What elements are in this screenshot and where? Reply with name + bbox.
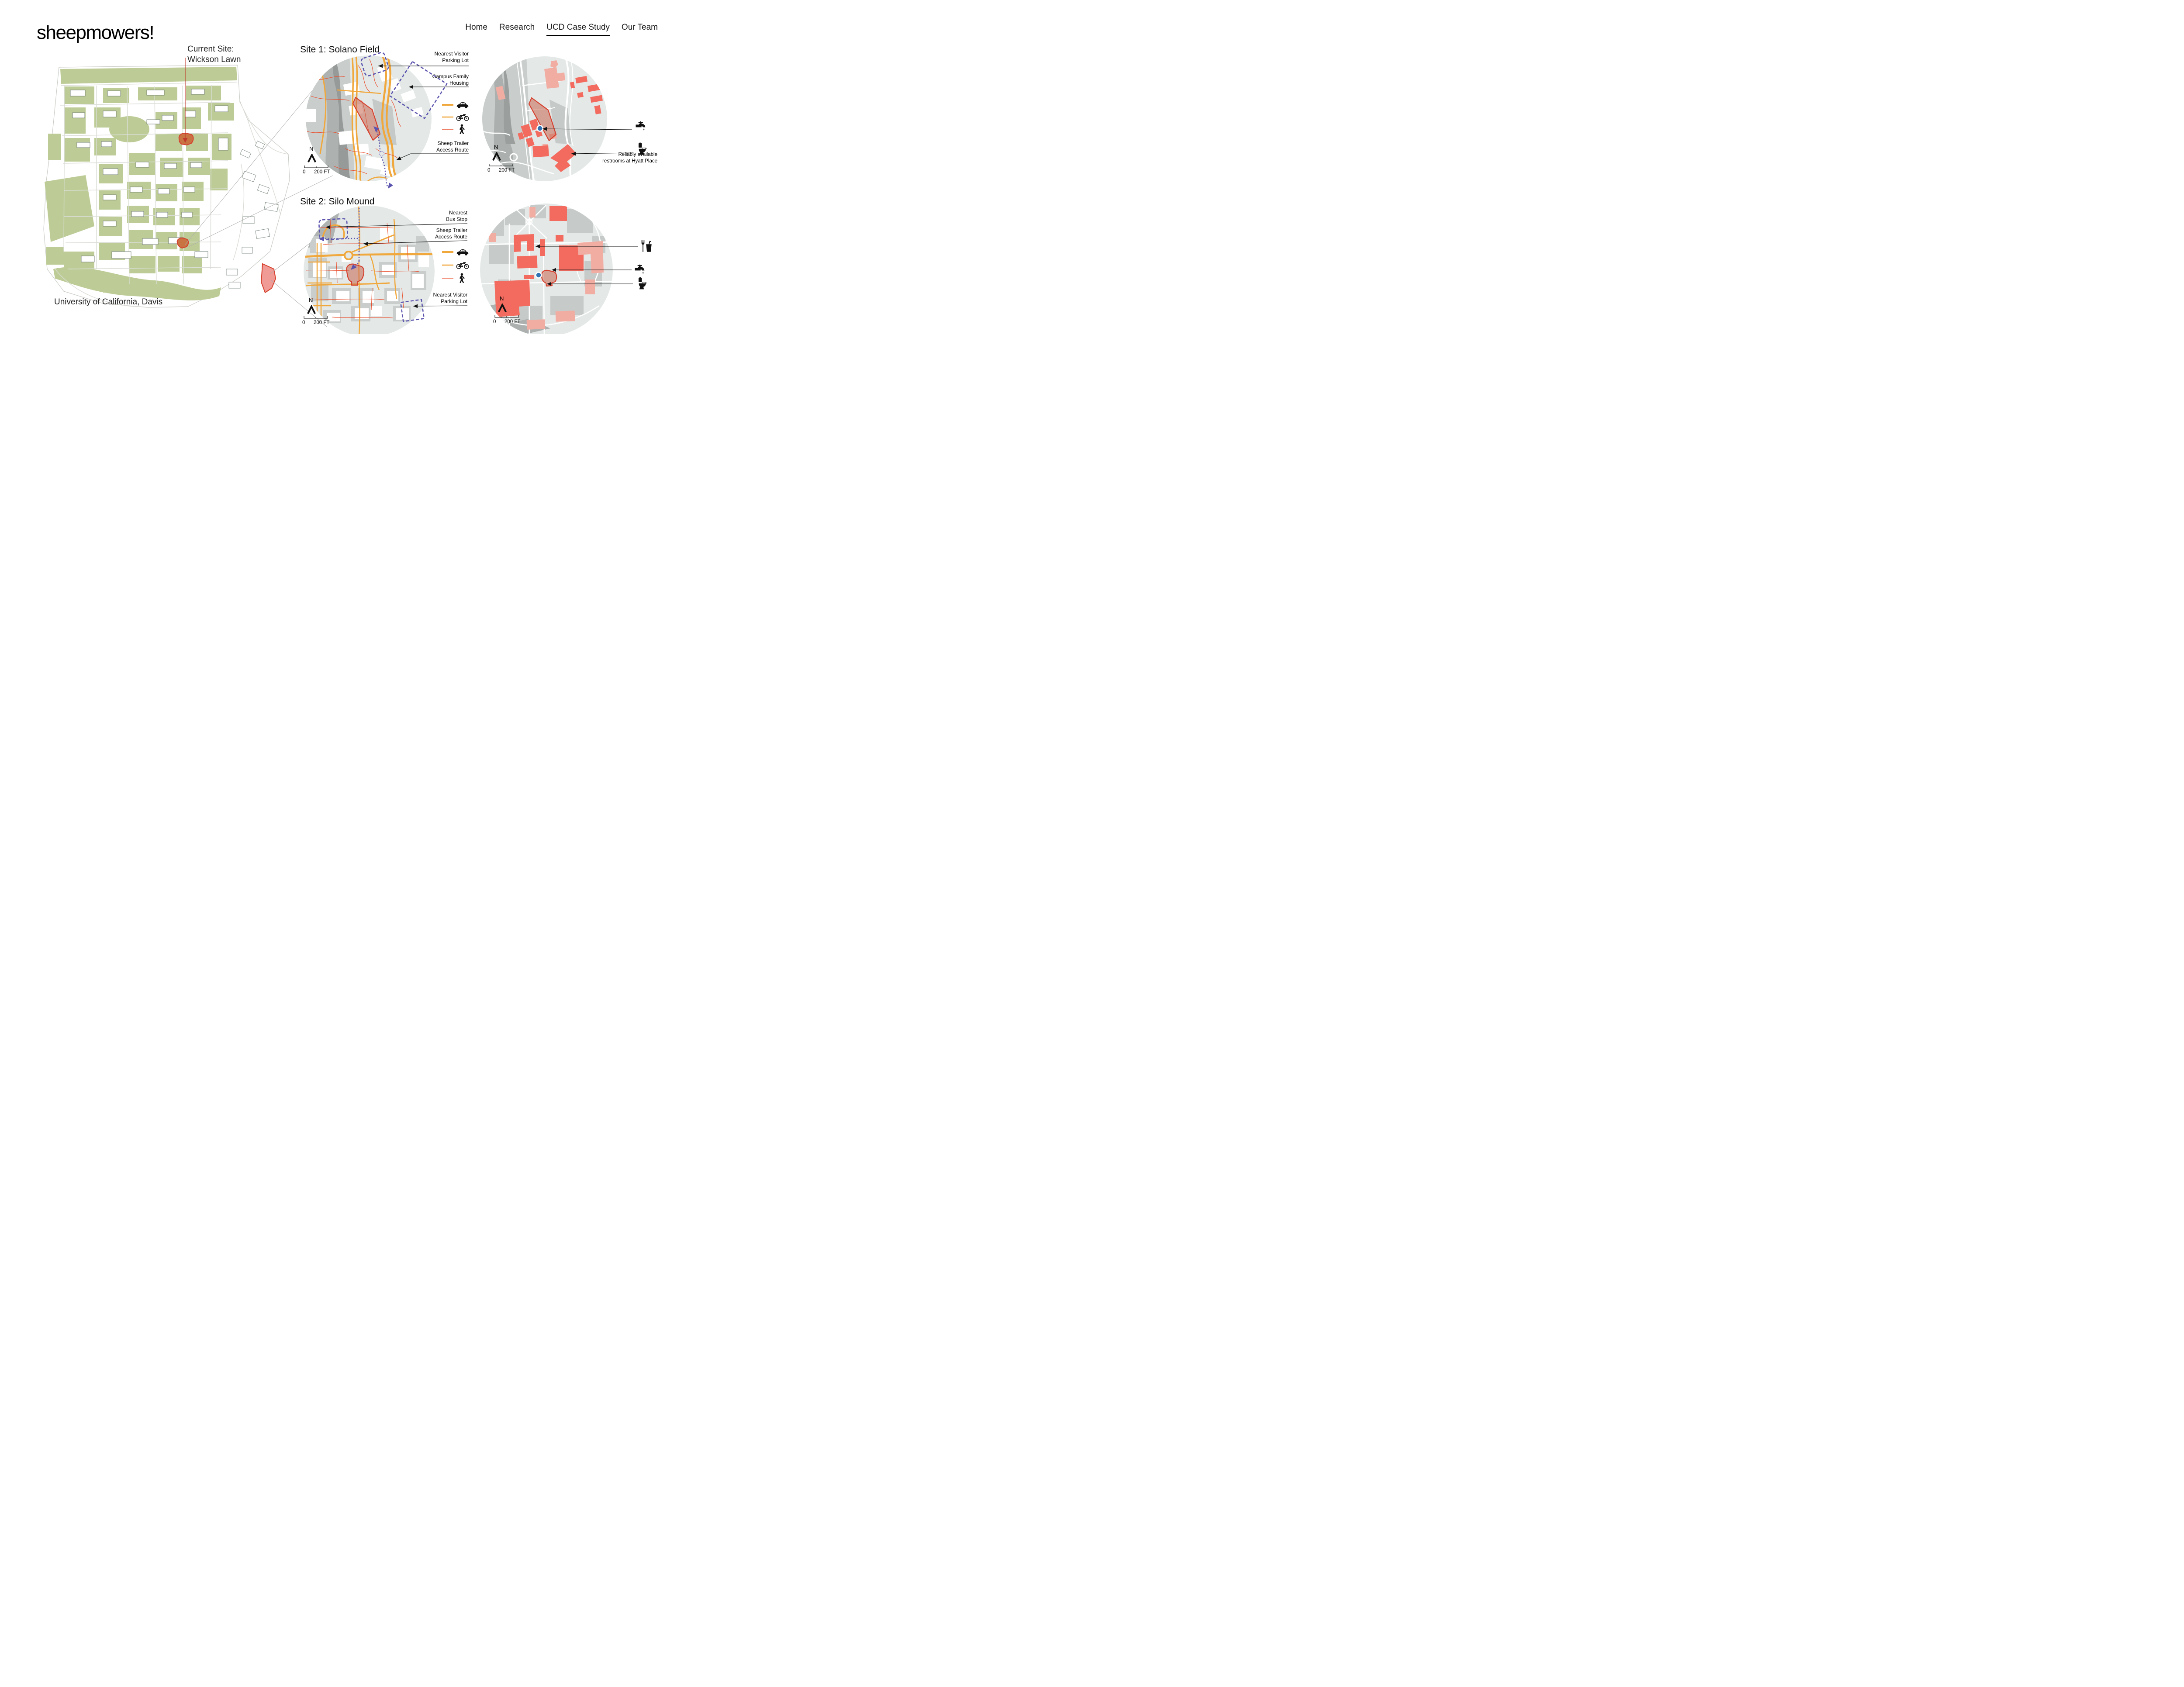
site2-label-bus-stop: Nearest Bus Stop <box>411 210 467 222</box>
water-faucet-icon <box>635 265 644 274</box>
site2-legend <box>442 249 469 283</box>
site1-label-housing: Campus Family Housing <box>412 73 469 86</box>
food-drink-icon <box>642 240 652 252</box>
north-label: N <box>309 297 313 304</box>
north-label: N <box>309 145 313 152</box>
scale-zero: 0 <box>487 168 490 173</box>
site2-label-trailer-route: Sheep Trailer Access Route <box>411 227 467 240</box>
water-faucet-icon <box>636 121 645 131</box>
scale-length: 200 FT <box>314 320 329 325</box>
water-source-dot <box>537 126 543 131</box>
site1-title: Site 1: Solano Field <box>300 45 380 55</box>
scale-zero: 0 <box>493 319 496 324</box>
scale-length: 200 FT <box>314 169 330 175</box>
nav-item-home[interactable]: Home <box>465 23 487 35</box>
restrooms-note: Reliably available restrooms at Hyatt Pl… <box>583 152 657 164</box>
campus-caption: University of California, Davis <box>54 297 162 307</box>
pedestrian-icon <box>460 124 464 134</box>
scale-zero: 0 <box>302 320 305 325</box>
bicycle-icon <box>456 114 468 121</box>
toilet-icon <box>639 277 646 289</box>
site1-label-parking: Nearest Visitor Parking Lot <box>412 51 469 63</box>
site2-label-parking: Nearest Visitor Parking Lot <box>411 292 467 304</box>
site2-amenities-circle <box>480 204 613 334</box>
scale-length: 200 FT <box>505 319 520 324</box>
north-label: N <box>500 295 504 302</box>
car-icon <box>457 249 468 255</box>
car-icon <box>457 102 468 108</box>
nav-item-ucd-case-study[interactable]: UCD Case Study <box>546 23 610 36</box>
campus-overview-map <box>44 65 290 307</box>
nav-item-research[interactable]: Research <box>499 23 535 35</box>
site1-legend <box>442 102 469 134</box>
site2-title: Site 2: Silo Mound <box>300 197 374 207</box>
site1-label-trailer-route: Sheep Trailer Access Route <box>412 140 469 153</box>
pedestrian-icon <box>460 273 464 283</box>
nav-item-our-team[interactable]: Our Team <box>622 23 658 35</box>
logo[interactable]: sheepmowers! <box>37 22 154 44</box>
current-site-label: Current Site: Wickson Lawn <box>187 44 241 66</box>
north-arrow-icon <box>308 307 315 314</box>
ucd-case-study-page: sheepmowers! Home Research UCD Case Stud… <box>0 0 685 334</box>
water-source-dot <box>536 273 542 278</box>
scale-length: 200 FT <box>499 168 515 173</box>
north-arrow-icon <box>308 155 316 162</box>
silo-mound-site <box>261 264 276 293</box>
scale-zero: 0 <box>303 169 305 175</box>
scale-bar <box>304 166 328 168</box>
north-label: N <box>494 144 498 150</box>
bicycle-icon <box>456 262 468 269</box>
main-nav: Home Research UCD Case Study Our Team <box>465 23 658 36</box>
